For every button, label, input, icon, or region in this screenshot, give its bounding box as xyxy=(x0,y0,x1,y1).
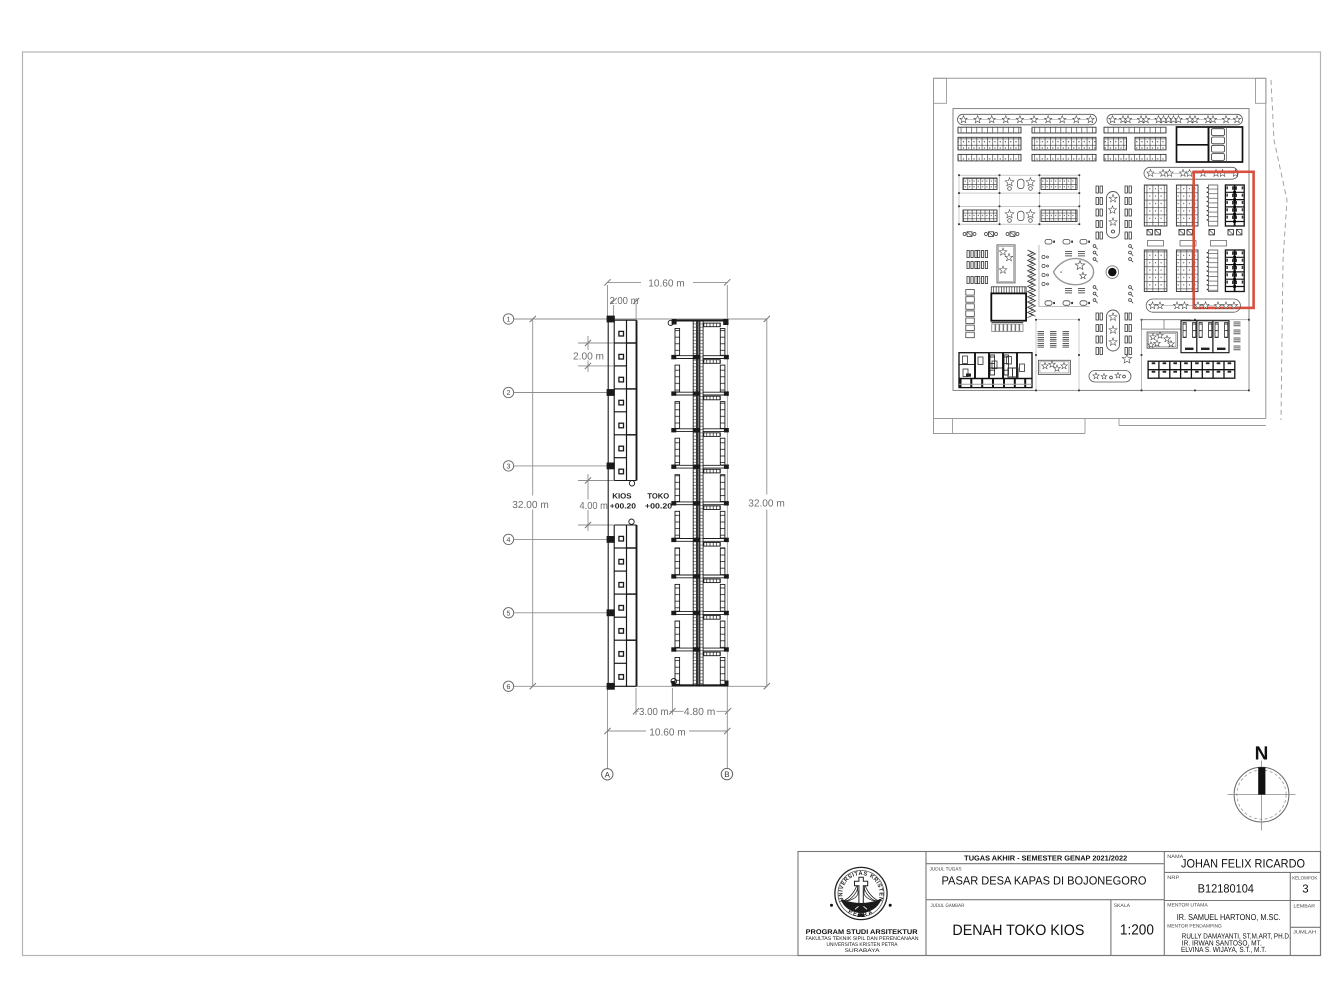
svg-text:+00.20: +00.20 xyxy=(610,502,636,511)
svg-text:IR. SAMUEL HARTONO, M.SC.: IR. SAMUEL HARTONO, M.SC. xyxy=(1177,912,1281,922)
svg-text:1: 1 xyxy=(507,317,511,324)
svg-text:2.00 m: 2.00 m xyxy=(573,351,604,362)
svg-text:B12180104: B12180104 xyxy=(1198,882,1255,896)
svg-text:4.80 m: 4.80 m xyxy=(684,707,716,718)
svg-text:MENTOR PENDAMPING: MENTOR PENDAMPING xyxy=(1167,924,1222,930)
svg-text:JUDUL GAMBAR: JUDUL GAMBAR xyxy=(931,903,965,909)
svg-text:4.00 m: 4.00 m xyxy=(580,501,608,512)
svg-text:SURABAYA: SURABAYA xyxy=(845,948,881,954)
svg-text:TOKO: TOKO xyxy=(647,492,669,501)
svg-text:3.00 m: 3.00 m xyxy=(639,707,669,718)
svg-text:10.60 m: 10.60 m xyxy=(649,728,685,739)
svg-text:32.00 m: 32.00 m xyxy=(512,500,549,511)
svg-text:KELOMPOK: KELOMPOK xyxy=(1292,875,1318,881)
svg-text:DENAH TOKO KIOS: DENAH TOKO KIOS xyxy=(952,922,1084,939)
svg-text:ELVINA S. WIJAYA, S.T., M.T.: ELVINA S. WIJAYA, S.T., M.T. xyxy=(1181,945,1266,954)
svg-text:32.00 m: 32.00 m xyxy=(748,498,785,509)
svg-text:KIOS: KIOS xyxy=(612,492,631,501)
svg-text:LEMBAR: LEMBAR xyxy=(1294,904,1316,910)
svg-text:JUDUL TUGAS: JUDUL TUGAS xyxy=(930,866,963,872)
svg-text:1:200: 1:200 xyxy=(1120,922,1154,938)
svg-text:TUGAS AKHIR - SEMESTER GENAP 2: TUGAS AKHIR - SEMESTER GENAP 2021/2022 xyxy=(964,854,1127,863)
svg-text:JOHAN FELIX RICARDO: JOHAN FELIX RICARDO xyxy=(1181,856,1305,870)
svg-text:PASAR DESA KAPAS DI BOJONEGORO: PASAR DESA KAPAS DI BOJONEGORO xyxy=(942,874,1147,888)
svg-text:SKALA: SKALA xyxy=(1114,903,1131,909)
svg-text:NRP: NRP xyxy=(1167,875,1180,881)
svg-text:10.60 m: 10.60 m xyxy=(648,278,684,289)
svg-text:4: 4 xyxy=(507,537,511,544)
svg-text:B: B xyxy=(724,770,729,779)
svg-text:5: 5 xyxy=(507,610,511,617)
svg-text:+00.20: +00.20 xyxy=(645,502,672,511)
svg-text:3: 3 xyxy=(1302,884,1308,896)
svg-text:MENTOR UTAMA: MENTOR UTAMA xyxy=(1167,903,1208,909)
svg-text:6: 6 xyxy=(507,684,511,691)
svg-text:JUMLAH: JUMLAH xyxy=(1293,930,1317,936)
svg-text:2: 2 xyxy=(507,390,511,397)
svg-text:3: 3 xyxy=(507,464,511,471)
svg-text:PROGRAM STUDI ARSITEKTUR: PROGRAM STUDI ARSITEKTUR xyxy=(806,929,918,936)
svg-text:A: A xyxy=(605,770,611,779)
